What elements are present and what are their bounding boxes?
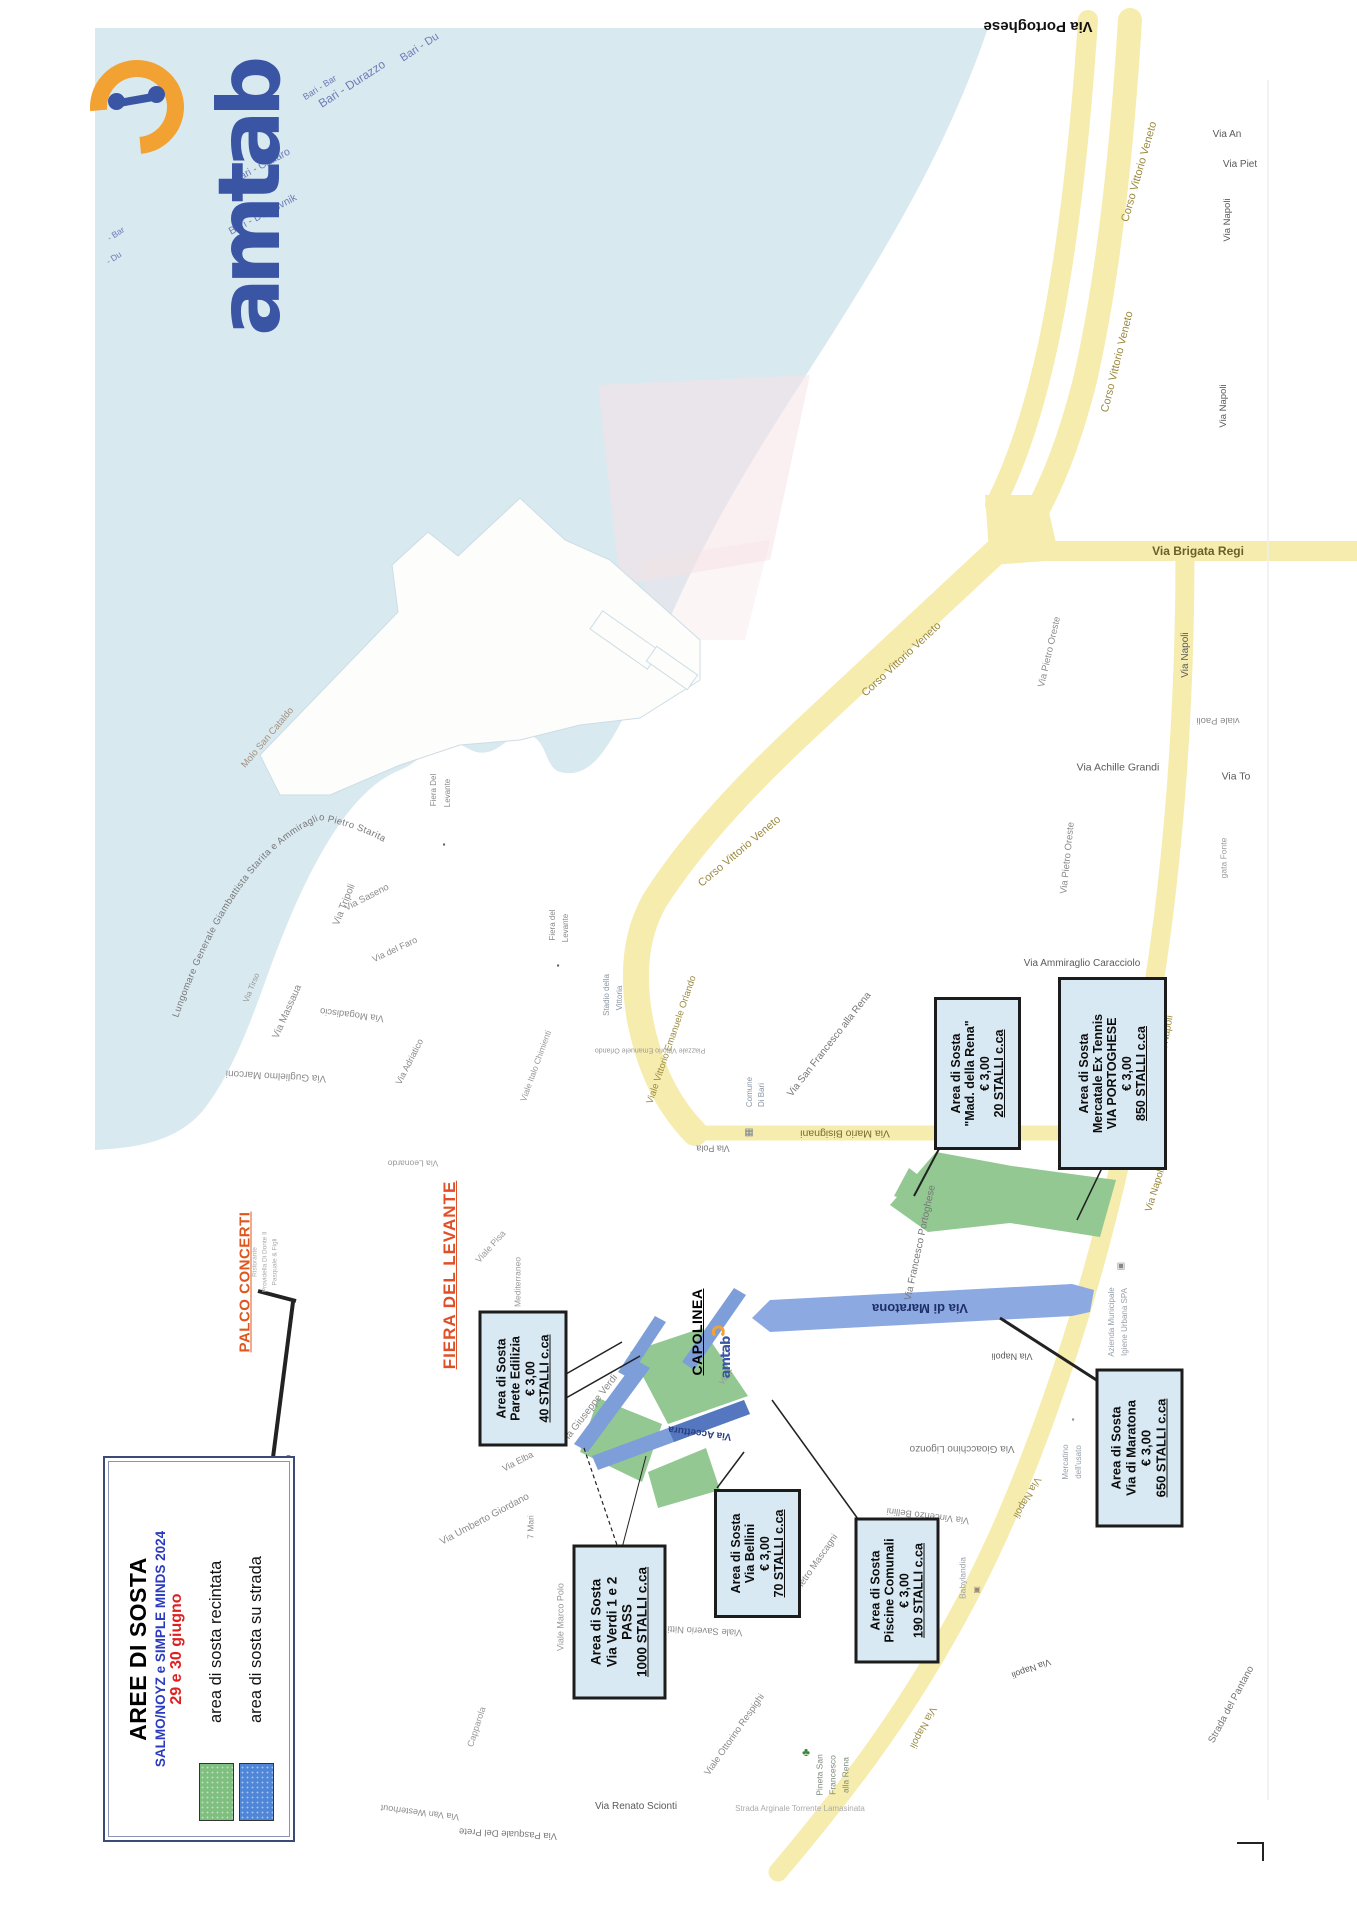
legend-date: 29 e 30 giugno [168, 1593, 186, 1704]
legend-item-su-strada: area di sosta su strada [239, 1477, 274, 1821]
scanned-map-page: Lungomare Generale Giambattista Starita … [0, 0, 1357, 1920]
legend-subtitle: SALMO/NOYZ e SIMPLE MINDS 2024 [153, 1531, 168, 1767]
capolinea-label: CAPOLINEA [689, 1289, 705, 1376]
amtab-logo: amtab [104, 50, 300, 338]
fold-mark [1237, 1843, 1263, 1861]
amtab-logo-text: amtab [200, 63, 300, 336]
legend-box: AREE DI SOSTA SALMO/NOYZ e SIMPLE MINDS … [103, 1456, 295, 1842]
fiera-del-levante-label: FIERA DEL LEVANTE [440, 1181, 460, 1370]
legend-item-recintata: area di sosta recintata [199, 1477, 234, 1821]
green-swatch-icon [199, 1763, 234, 1821]
legend-title: AREE DI SOSTA [125, 1557, 152, 1741]
capolinea-amtab-logo: amtab [712, 1326, 734, 1379]
blue-swatch-icon [239, 1763, 274, 1821]
palco-concerti-label: PALCO CONCERTI [237, 1212, 254, 1353]
